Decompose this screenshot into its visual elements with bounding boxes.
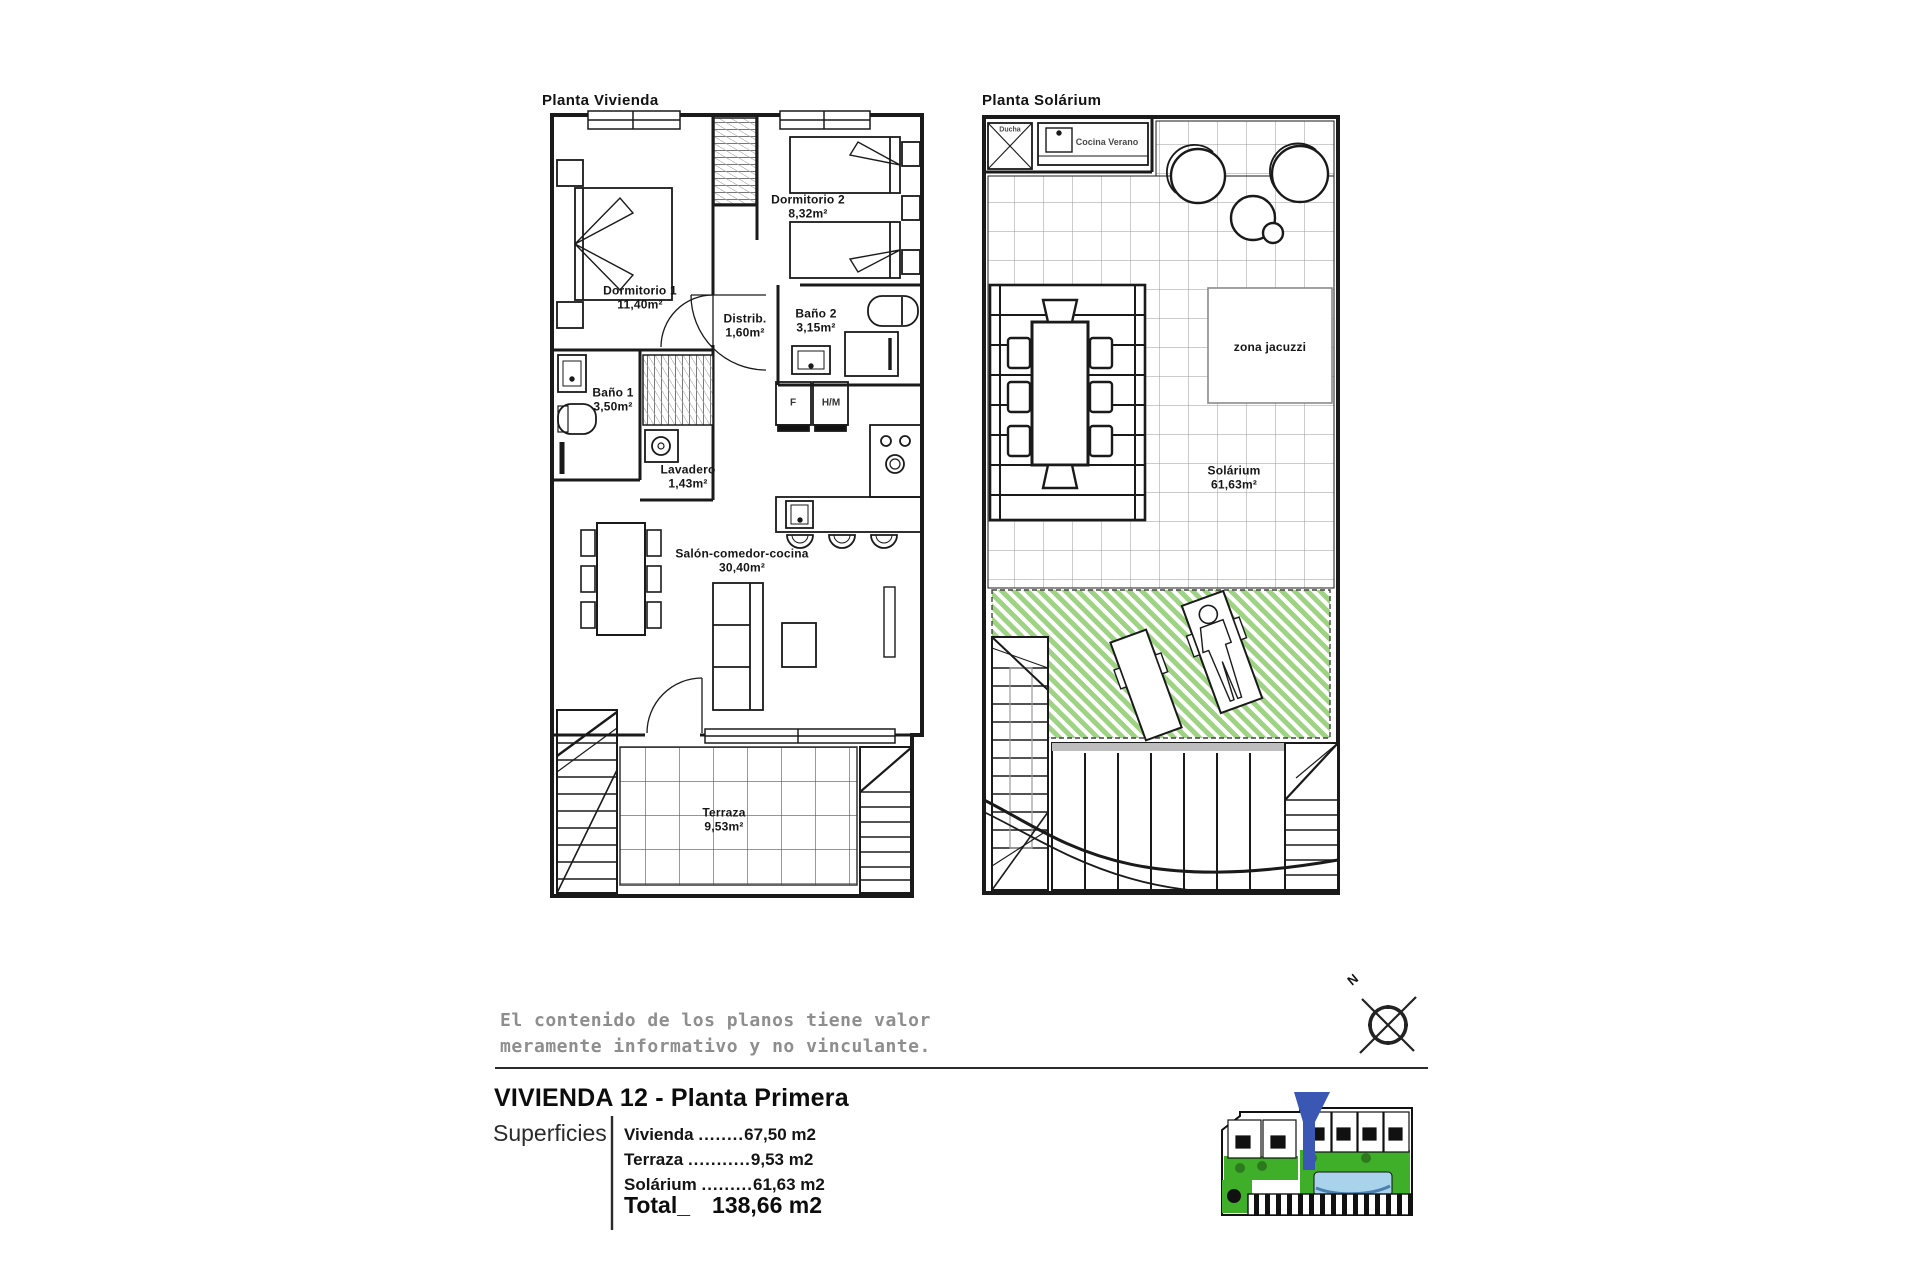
kitchen <box>776 382 922 548</box>
superficies-label: Superficies <box>493 1120 607 1147</box>
site-plan-thumbnail <box>1222 1092 1412 1215</box>
areas-table: Vivienda ........67,50 m2 Terraza ......… <box>624 1122 825 1197</box>
room-label-dormitorio2: Dormitorio 2 8,32m² <box>771 193 845 222</box>
pergola-dining <box>990 285 1145 520</box>
disclaimer-text: El contenido de los planos tiene valor m… <box>500 1008 931 1060</box>
room-label-lavadero: Lavadero 1,43m² <box>661 463 716 492</box>
stairs-left <box>557 710 617 893</box>
total-row: Total_138,66 m2 <box>624 1192 822 1219</box>
room-label-terraza: Terraza 9,53m² <box>702 806 745 835</box>
stairs-right <box>860 747 912 893</box>
plan-solarium-title: Planta Solárium <box>982 92 1101 109</box>
fridge-label: F <box>790 398 796 409</box>
plan-vivienda-drawing <box>552 111 922 896</box>
page-title: VIVIENDA 12 - Planta Primera <box>494 1084 849 1113</box>
table-row-terraza: Terraza ...........9,53 m2 <box>624 1147 825 1172</box>
room-label-salon: Salón-comedor-cocina 30,40m² <box>675 547 808 576</box>
plan-line-art <box>0 0 1920 1280</box>
plan-sheet: Planta Vivienda Planta Solárium Dormitor… <box>0 0 1920 1280</box>
pergola-roof-slats <box>1052 743 1285 890</box>
room-label-bano1: Baño 1 3,50m² <box>592 386 633 415</box>
north-arrow <box>1360 997 1416 1053</box>
washing-machine <box>645 430 678 462</box>
table-row-vivienda: Vivienda ........67,50 m2 <box>624 1122 825 1147</box>
plan-vivienda-title: Planta Vivienda <box>542 92 659 109</box>
plan-solarium-drawing <box>984 117 1338 894</box>
dining-table <box>581 523 661 635</box>
oven-label: H/M <box>822 398 840 409</box>
room-label-dormitorio1: Dormitorio 1 11,40m² <box>603 284 677 313</box>
solarium-stairs-left <box>992 637 1048 890</box>
room-label-bano2: Baño 2 3,15m² <box>795 307 836 336</box>
zona-jacuzzi-label: zona jacuzzi <box>1234 340 1306 354</box>
cocina-verano-label: Cocina Verano <box>1076 137 1139 147</box>
sofa <box>713 583 895 710</box>
ducha-label: Ducha <box>999 127 1020 134</box>
solarium-label: Solárium 61,63m² <box>1208 464 1261 493</box>
bathroom1-fixtures <box>558 355 596 474</box>
room-label-distribuidor: Distrib. 1,60m² <box>724 312 767 341</box>
